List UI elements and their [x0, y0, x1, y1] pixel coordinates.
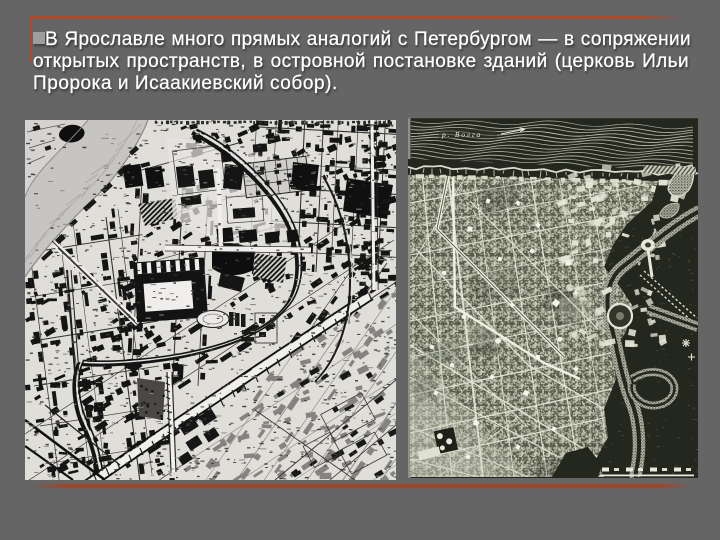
- svg-text:р. Волга: р. Волга: [441, 130, 482, 139]
